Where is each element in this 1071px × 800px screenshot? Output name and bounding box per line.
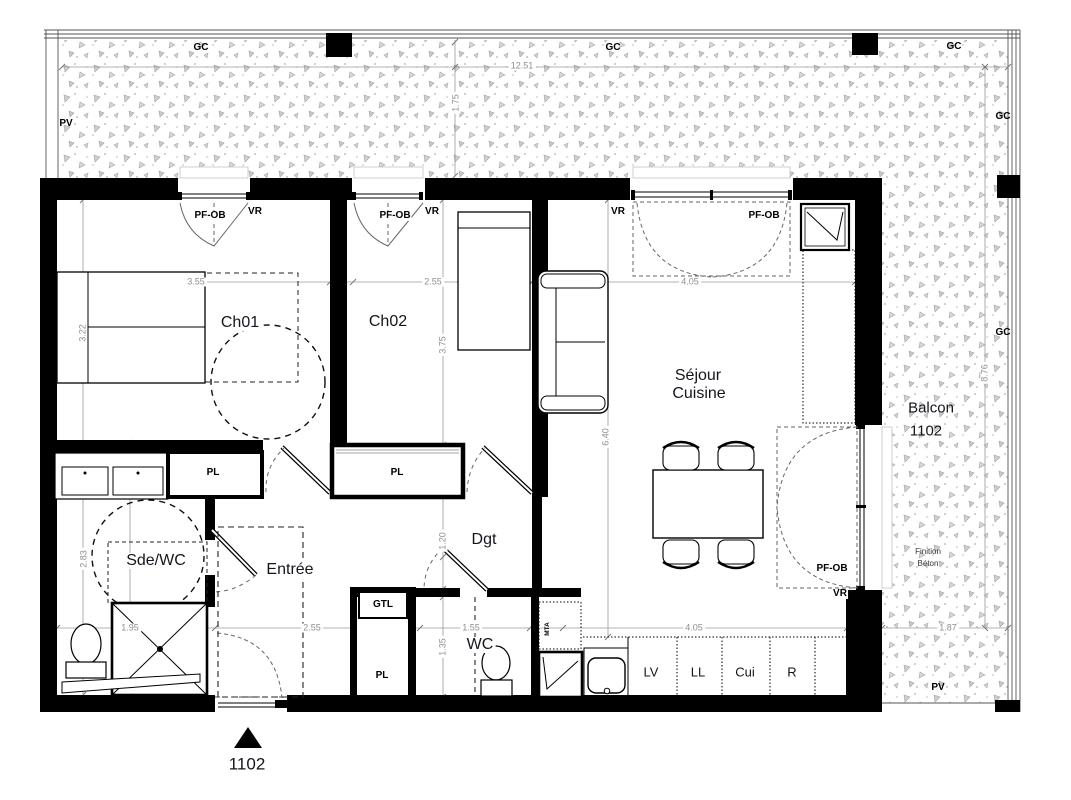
gc-label-top-mid: GC [606,43,621,53]
dim-balcony-bottom-depth: 1.87 [937,624,959,633]
room-label-ch02: Ch02 [367,314,409,330]
gc-label-top-right: GC [947,42,962,52]
shutter-label-balcony-door: VR [832,589,848,599]
pv-label-bottom: PV [931,683,944,693]
window-label-sejour: PF-OB [747,211,780,221]
room-label-dgt: Dgt [470,532,499,548]
window-label-ch01: PF-OB [193,211,226,221]
pv-label-left: PV [59,119,72,129]
appliance-washer: LL [691,666,705,679]
room-label-ch01: Ch01 [219,315,261,331]
unit-marker-triangle [234,727,262,748]
dim-kitchen-width: 4.05 [683,624,705,633]
floor-plan: GC GC GC GC GC PV PV 12.51 1.75 8.76 1.8… [0,0,1071,800]
dim-balcony-width: 12.51 [509,62,536,71]
dim-ch01-height: 3.22 [79,322,88,344]
dim-wc-width: 1.55 [460,624,482,633]
gc-label-right-mid: GC [996,328,1011,338]
balcony-number: 1102 [910,424,942,439]
room-label-sejour-line2: Cuisine [670,386,727,402]
dim-dgt-width: 1.20 [439,530,448,552]
window-label-ch02: PF-OB [378,211,411,221]
balcony-finish-line2: Béton [918,560,939,568]
closet-label-ch02: PL [390,468,405,478]
dim-balcony-right-length: 8.76 [981,362,990,384]
shutter-label-ch02: VR [424,207,440,217]
appliance-fridge: R [787,666,796,679]
gc-label-top-left: GC [194,43,209,53]
dim-sde-wc-height: 2.83 [80,548,89,570]
room-label-sejour-line1: Séjour [673,368,723,384]
balcony-name: Balcon [908,401,954,416]
dim-ch02-height: 3.75 [439,334,448,356]
unit-number-label: 1102 [229,756,266,773]
dim-ch01-width: 3.55 [185,278,207,287]
dim-wc-height: 1.35 [439,636,448,658]
gtl-label: GTL [372,600,394,610]
appliance-stove: Cui [735,666,755,679]
room-label-wc: WC [465,637,496,653]
shutter-label-ch01: VR [247,207,263,217]
shutter-label-sejour: VR [610,207,626,217]
gc-label-right-upper: GC [996,112,1011,122]
dim-sde-wc-width: 1.95 [119,624,141,633]
closet-label-gtl-column: PL [375,671,390,681]
room-label-entree: Entrée [264,562,315,578]
balcony-finish-line1: Finition [915,548,941,556]
appliance-dishwasher: LV [644,666,659,679]
mta-duct-label: MTA [545,622,552,636]
room-label-sde-wc: Sde/WC [124,553,188,569]
dim-sejour-width: 4.05 [679,278,701,287]
window-label-balcony-door: PF-OB [815,564,848,574]
closet-label-sde-strip: PL [206,468,221,478]
dim-sejour-height: 6.40 [602,426,611,448]
dim-entree-width: 2.55 [301,624,323,633]
dim-ch02-width: 2.55 [422,278,444,287]
dim-balcony-depth: 1.75 [452,92,461,114]
